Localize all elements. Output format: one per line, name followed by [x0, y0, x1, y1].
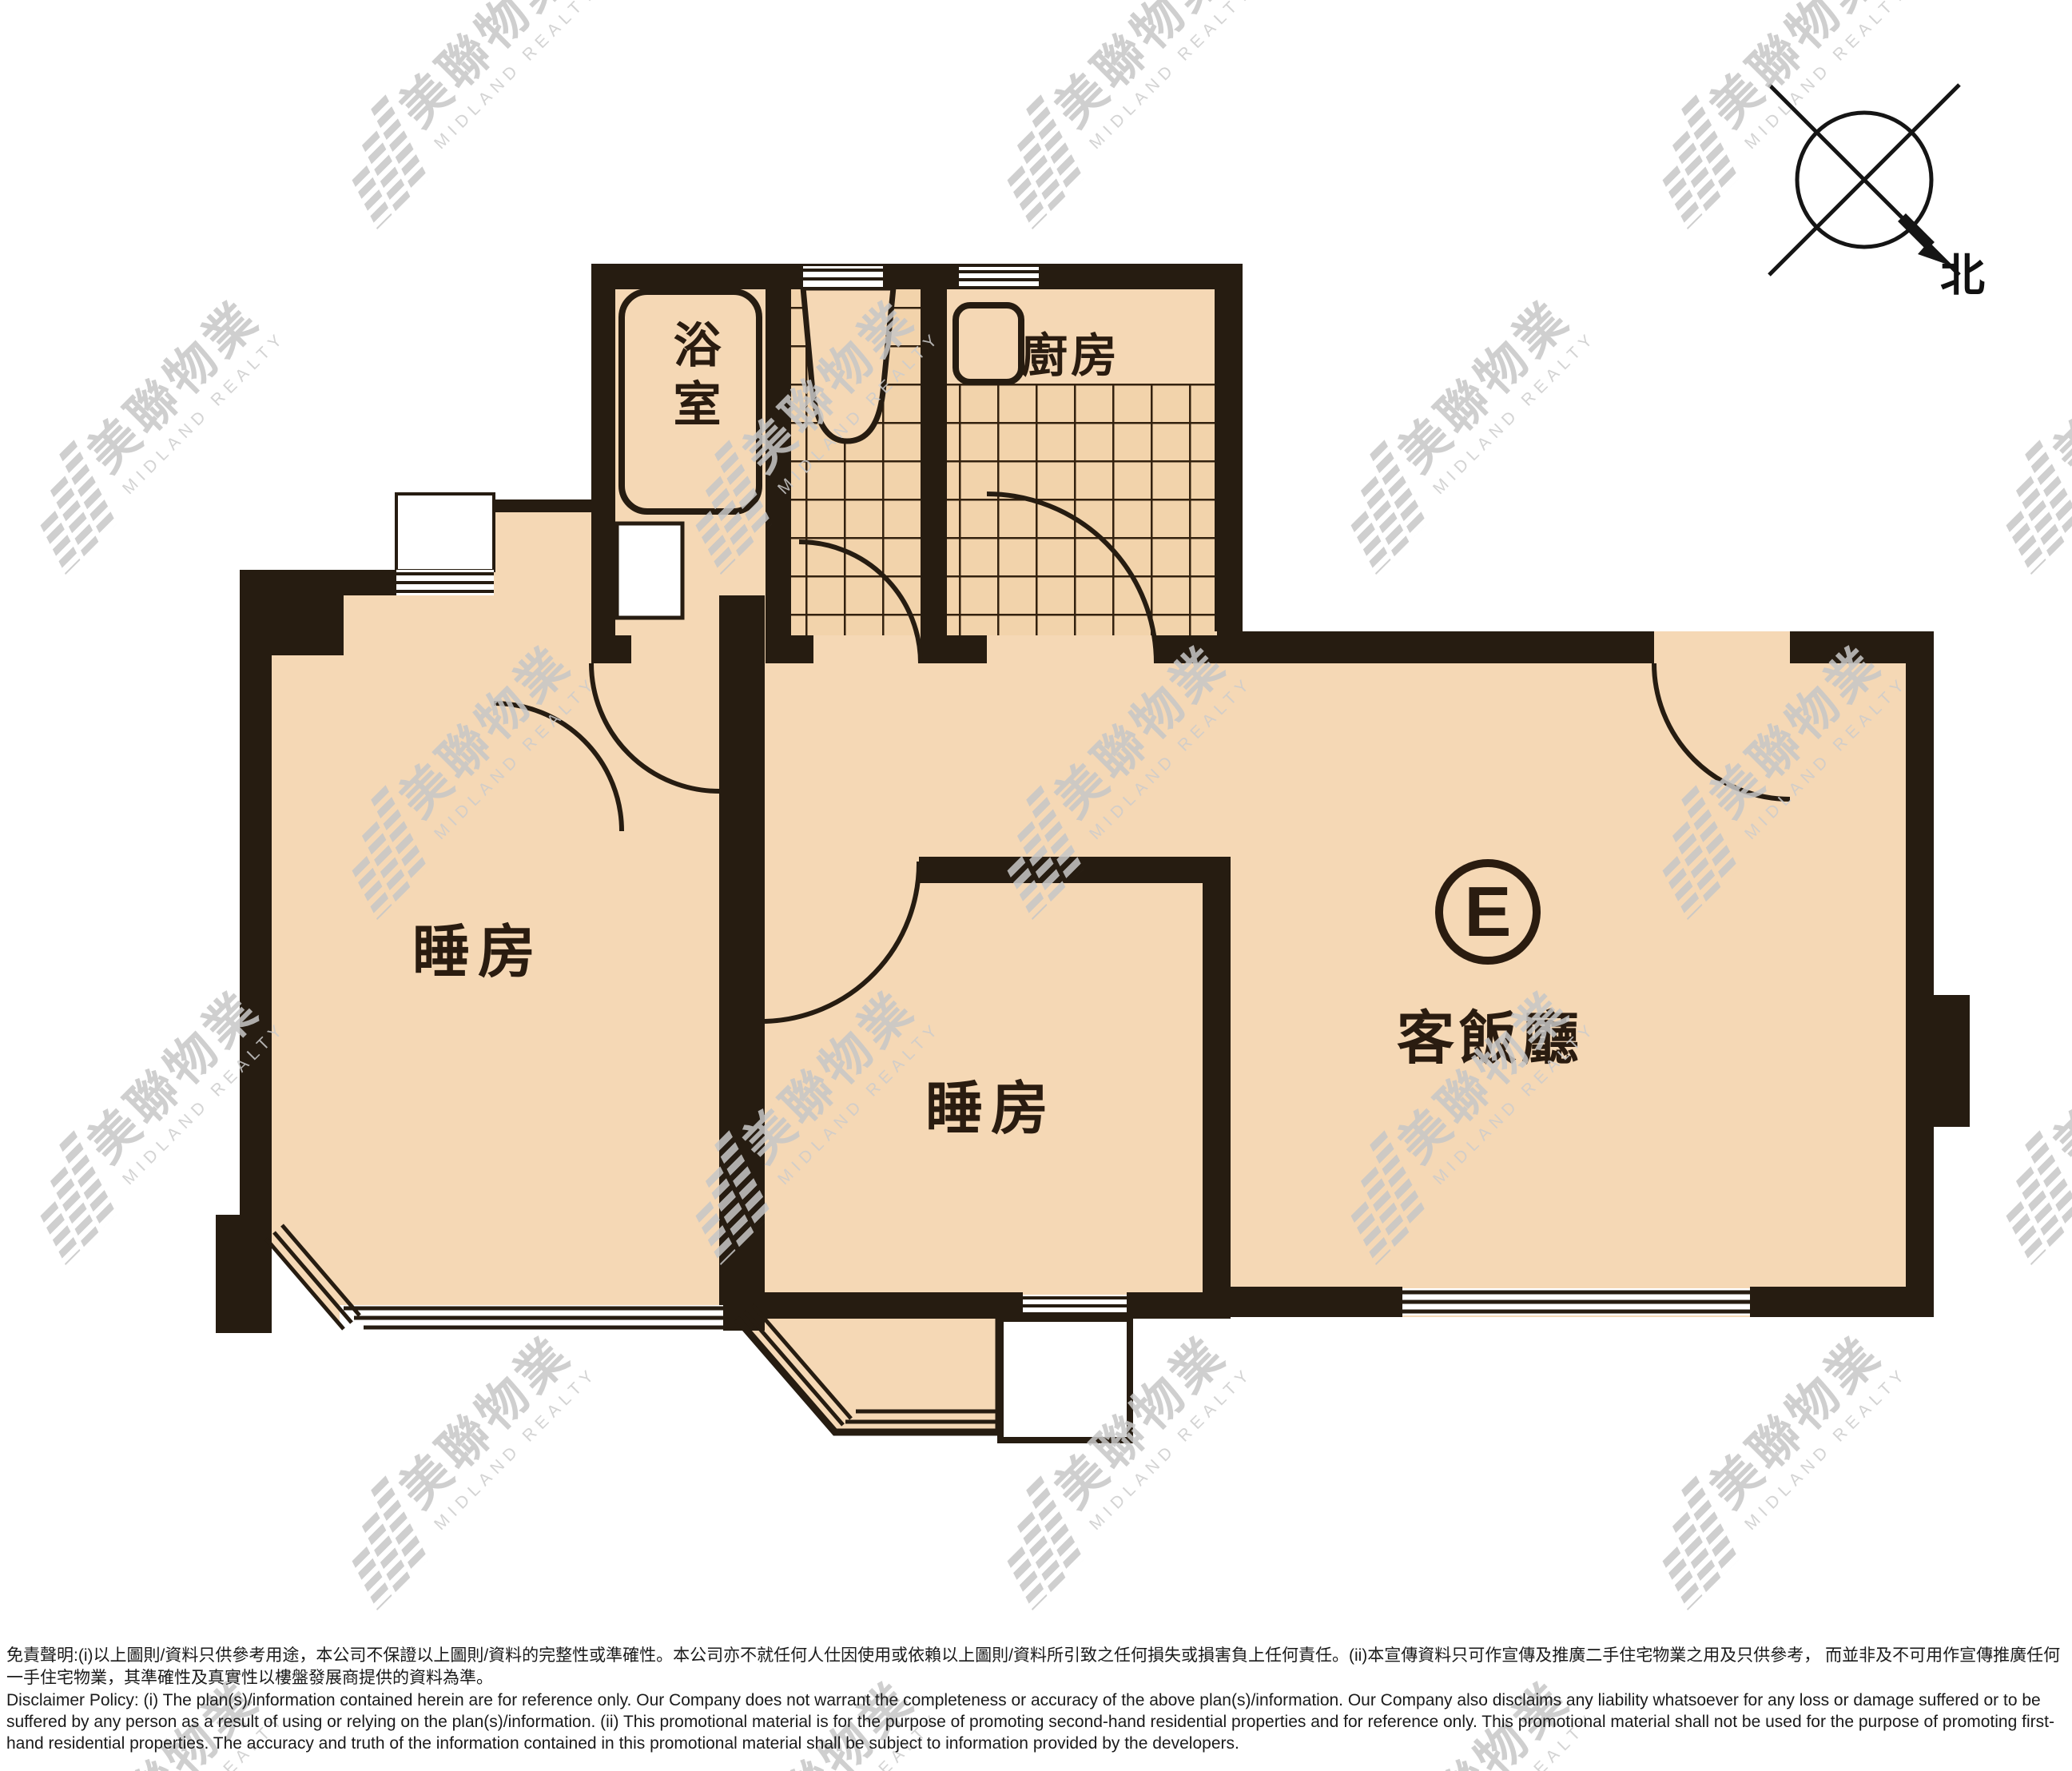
disclaimer: 免責聲明:(i)以上圖則/資料只供參考用途，本公司不保證以上圖則/資料的完整性或… — [6, 1645, 2066, 1755]
disclaimer-en: Disclaimer Policy: (i) The plan(s)/infor… — [6, 1689, 2066, 1755]
kitchen-sink — [956, 305, 1021, 382]
lightwell — [1000, 1319, 1130, 1440]
wash-basin — [617, 523, 682, 618]
floorplan-page: 浴室 廚房 睡房 睡房 客飯廳 E 北 美聯物業MIDLAND REALTY美聯… — [0, 0, 2072, 1771]
tile-floor-kitchen — [947, 384, 1215, 635]
label-bathroom: 浴室 — [658, 320, 728, 438]
compass — [1769, 85, 1959, 275]
label-north: 北 — [1940, 240, 1985, 304]
disclaimer-zh: 免責聲明:(i)以上圖則/資料只供參考用途，本公司不保證以上圖則/資料的完整性或… — [6, 1645, 2066, 1689]
label-bedroom-left: 睡房 — [412, 905, 543, 989]
unit-badge: E — [1435, 859, 1541, 965]
label-living-dining: 客飯廳 — [1397, 991, 1584, 1075]
toilet-bowl — [803, 288, 893, 441]
vestibule-floor — [494, 511, 591, 575]
label-kitchen: 廚房 — [1021, 318, 1120, 385]
floorplan-drawing — [0, 0, 2072, 1771]
label-bedroom-middle: 睡房 — [925, 1061, 1056, 1145]
vestibule-top-wall — [494, 499, 591, 512]
window-box — [396, 494, 494, 571]
